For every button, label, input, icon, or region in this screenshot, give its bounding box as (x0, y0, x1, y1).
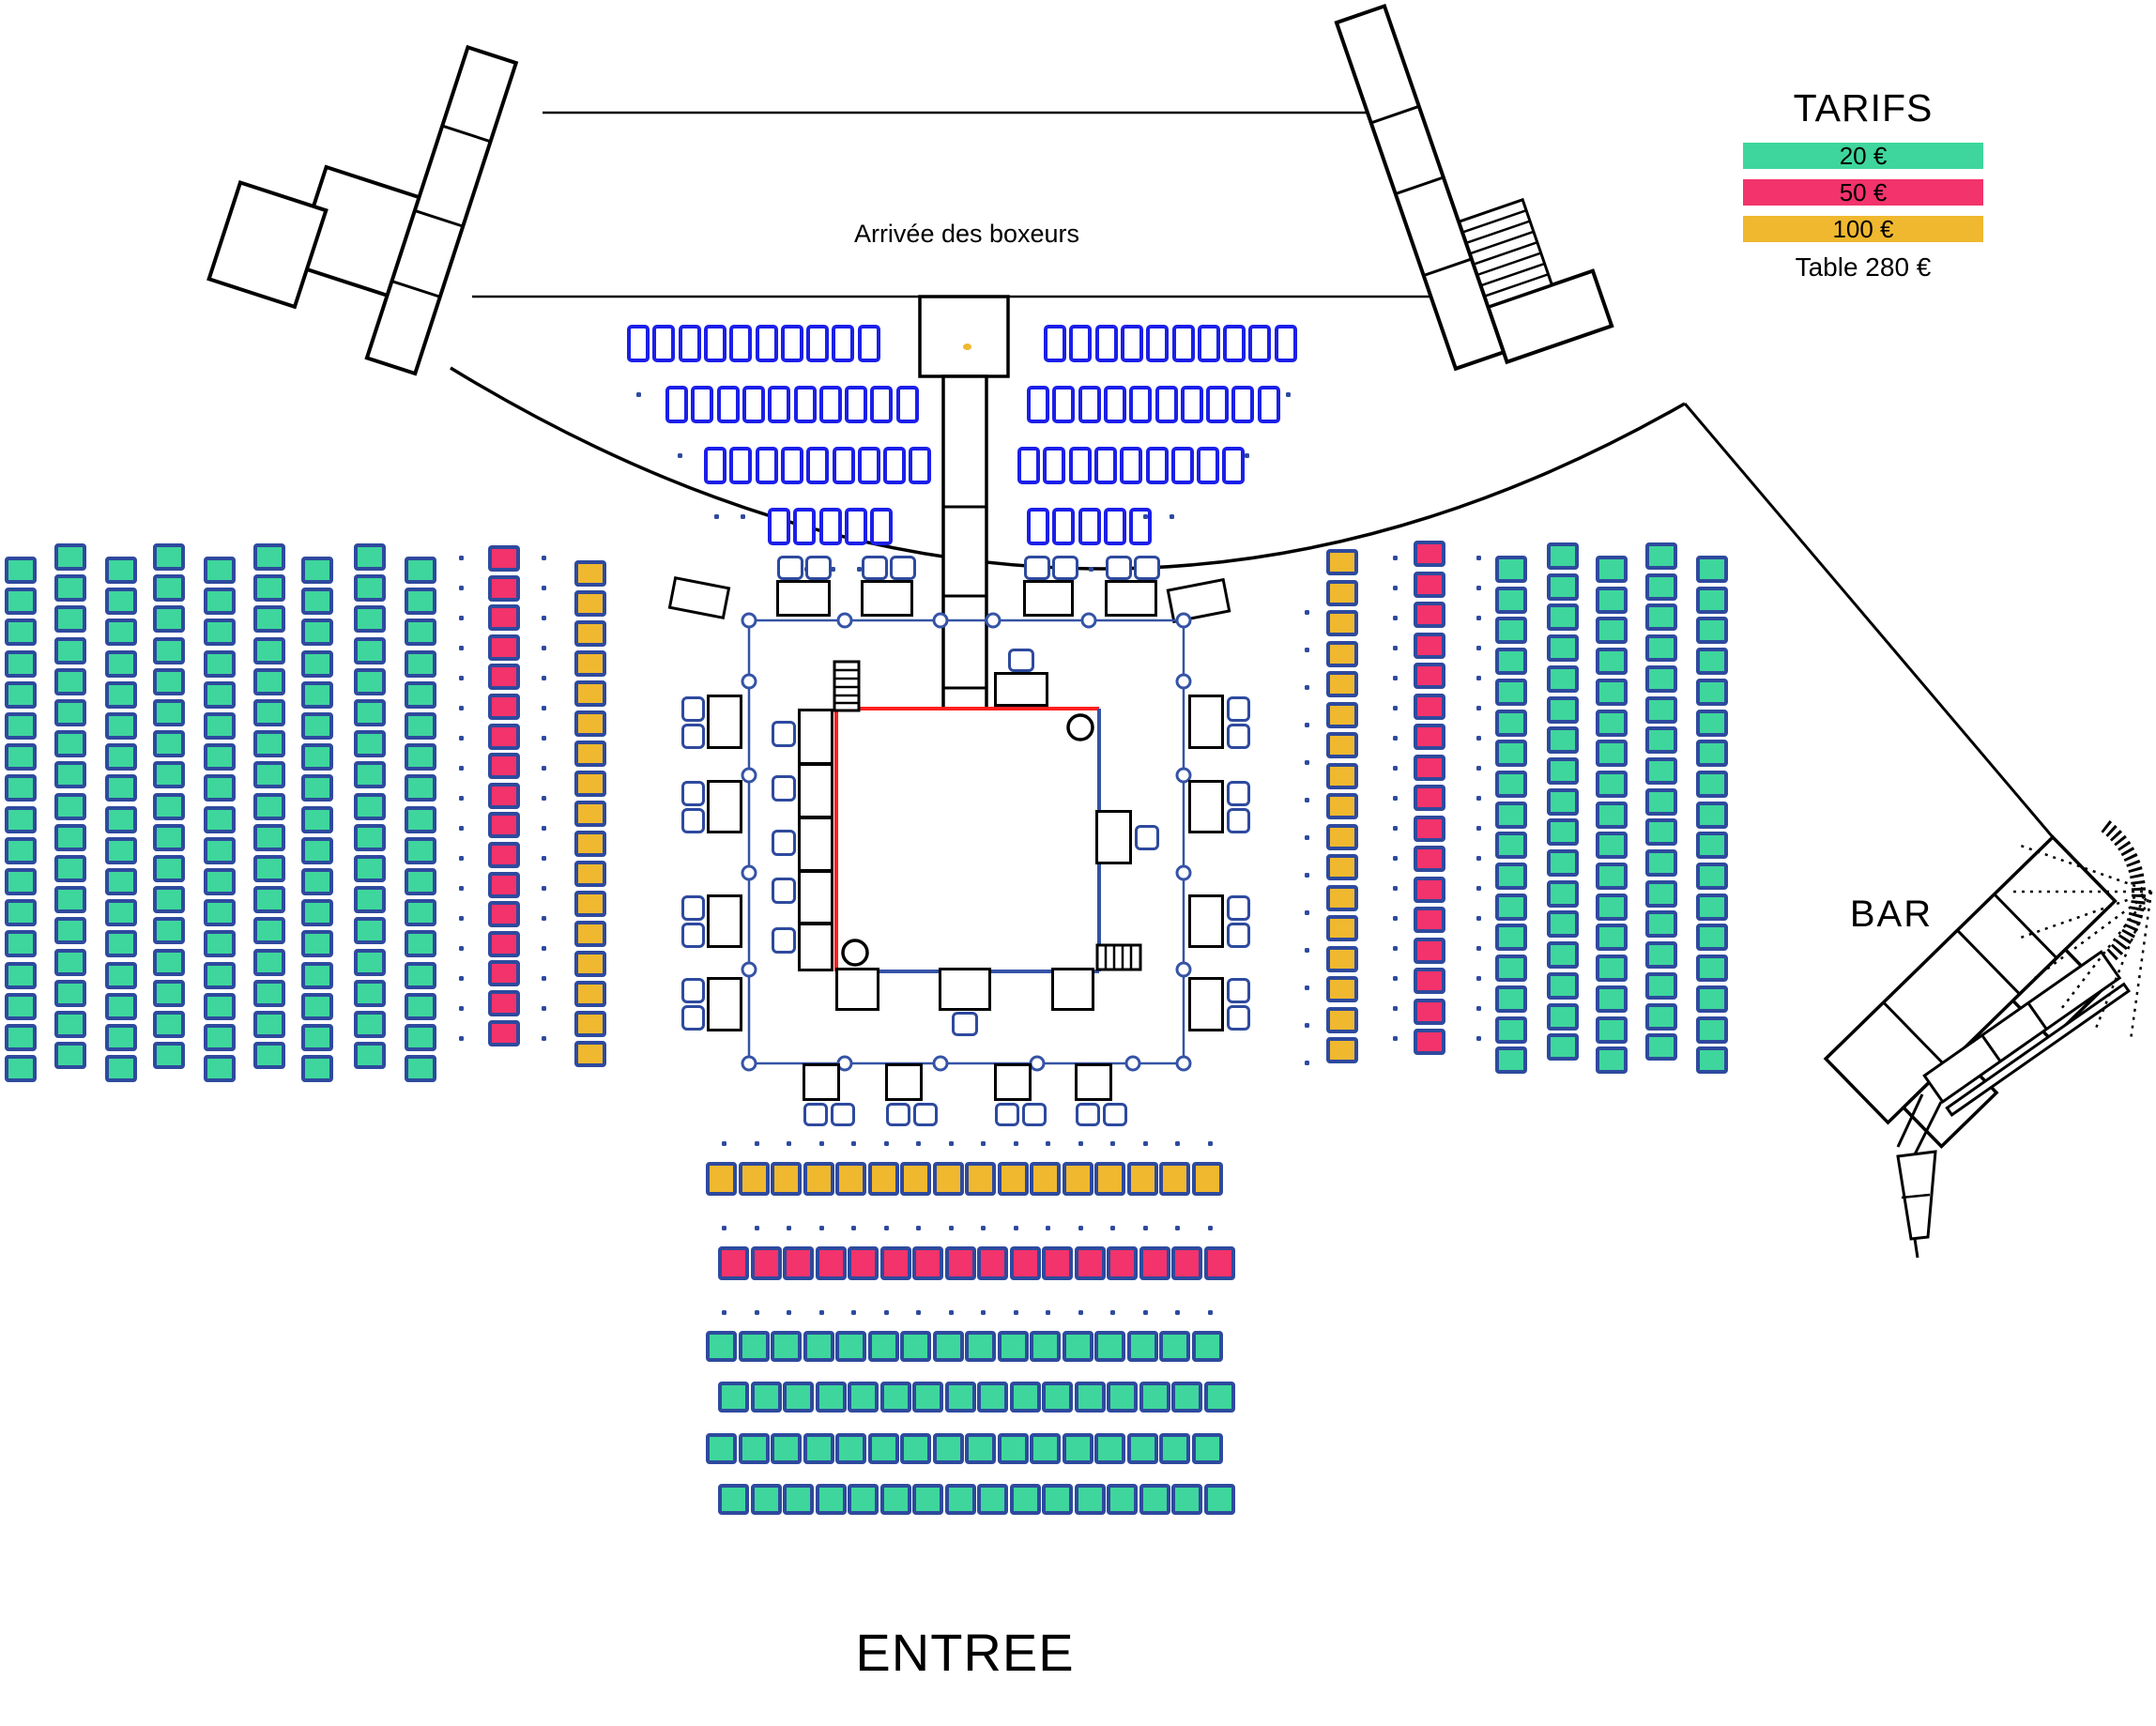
stage-seat[interactable] (691, 386, 713, 423)
stage-seat[interactable] (819, 386, 842, 423)
seat-green[interactable] (405, 712, 436, 740)
seat-green[interactable] (204, 1055, 236, 1082)
seat-green[interactable] (706, 1331, 737, 1362)
chair-icon[interactable] (1022, 1103, 1047, 1126)
seat-pink[interactable] (488, 753, 520, 779)
seat-green[interactable] (977, 1484, 1008, 1515)
seat-green[interactable] (1696, 832, 1728, 859)
seat-green[interactable] (253, 855, 285, 882)
seat-pink[interactable] (488, 604, 520, 631)
seat-green[interactable] (1696, 648, 1728, 675)
stage-seat[interactable] (627, 325, 650, 362)
seat-green[interactable] (253, 637, 285, 664)
seat-green[interactable] (1075, 1484, 1106, 1515)
seat-green[interactable] (253, 917, 285, 944)
seat-green[interactable] (301, 588, 333, 615)
seat-pink[interactable] (945, 1246, 976, 1280)
seat-green[interactable] (1107, 1382, 1138, 1413)
seat-green[interactable] (1645, 634, 1677, 662)
stage-seat[interactable] (717, 386, 740, 423)
seat-green[interactable] (354, 917, 386, 944)
seat-pink[interactable] (488, 1020, 520, 1046)
seat-green[interactable] (1696, 710, 1728, 737)
seat-pink[interactable] (1414, 877, 1445, 903)
seat-green[interactable] (1127, 1433, 1158, 1464)
seat-green[interactable] (1696, 894, 1728, 921)
stage-seat[interactable] (729, 325, 752, 362)
seat-orange[interactable] (1326, 702, 1358, 728)
seat-green[interactable] (1495, 617, 1527, 644)
stage-seat[interactable] (756, 325, 778, 362)
seat-green[interactable] (1696, 740, 1728, 767)
chair-icon[interactable] (1227, 1005, 1250, 1031)
seat-green[interactable] (1596, 802, 1628, 829)
seat-green[interactable] (1159, 1331, 1190, 1362)
seat-green[interactable] (253, 668, 285, 695)
seat-green[interactable] (1596, 556, 1628, 583)
seat-green[interactable] (1645, 696, 1677, 724)
seat-green[interactable] (1139, 1382, 1170, 1413)
chair-icon[interactable] (1103, 1103, 1127, 1126)
chair-icon[interactable] (1106, 556, 1132, 580)
seat-orange[interactable] (574, 891, 606, 917)
seat-green[interactable] (835, 1331, 866, 1362)
seat-orange[interactable] (998, 1162, 1029, 1196)
seat-orange[interactable] (1326, 946, 1358, 972)
seat-green[interactable] (739, 1433, 770, 1464)
seat-green[interactable] (354, 574, 386, 602)
seat-green[interactable] (1547, 910, 1579, 938)
seat-green[interactable] (153, 917, 185, 944)
seat-pink[interactable] (488, 575, 520, 602)
seat-green[interactable] (54, 1011, 86, 1038)
seat-green[interactable] (751, 1484, 782, 1515)
seat-green[interactable] (204, 681, 236, 709)
seat-pink[interactable] (488, 990, 520, 1016)
stage-seat[interactable] (1043, 447, 1065, 484)
stage-seat[interactable] (781, 447, 803, 484)
seat-pink[interactable] (488, 664, 520, 690)
stage-seat[interactable] (1198, 325, 1220, 362)
seat-green[interactable] (405, 1024, 436, 1051)
seat-green[interactable] (105, 712, 137, 740)
seat-green[interactable] (301, 930, 333, 957)
chair-icon[interactable] (1024, 556, 1050, 580)
stage-seat[interactable] (806, 325, 829, 362)
seat-pink[interactable] (1414, 633, 1445, 659)
chair-icon[interactable] (772, 775, 796, 802)
seat-green[interactable] (153, 543, 185, 571)
seat-green[interactable] (998, 1433, 1029, 1464)
seat-pink[interactable] (488, 901, 520, 927)
seat-green[interactable] (816, 1382, 847, 1413)
ringside-table[interactable] (1188, 780, 1224, 833)
stage-seat[interactable] (858, 447, 880, 484)
seat-orange[interactable] (574, 650, 606, 677)
stage-seat[interactable] (832, 325, 854, 362)
seat-green[interactable] (1495, 710, 1527, 737)
stage-seat[interactable] (1069, 325, 1092, 362)
seat-green[interactable] (1645, 603, 1677, 631)
seat-green[interactable] (54, 855, 86, 882)
seat-green[interactable] (354, 949, 386, 976)
stage-seat[interactable] (1129, 508, 1152, 545)
chair-icon[interactable] (681, 1005, 705, 1031)
seat-green[interactable] (105, 743, 137, 771)
seat-green[interactable] (204, 806, 236, 833)
stage-seat[interactable] (909, 447, 931, 484)
seat-green[interactable] (405, 650, 436, 678)
seat-green[interactable] (105, 868, 137, 895)
seat-green[interactable] (54, 699, 86, 726)
stage-seat[interactable] (819, 508, 842, 545)
seat-pink[interactable] (1139, 1246, 1170, 1280)
seat-green[interactable] (1696, 679, 1728, 706)
seat-green[interactable] (54, 917, 86, 944)
seat-green[interactable] (1696, 771, 1728, 798)
seat-green[interactable] (1042, 1382, 1073, 1413)
seat-pink[interactable] (880, 1246, 911, 1280)
seat-pink[interactable] (488, 872, 520, 898)
seat-green[interactable] (1596, 617, 1628, 644)
seat-green[interactable] (153, 1042, 185, 1069)
seat-pink[interactable] (1414, 907, 1445, 933)
seat-orange[interactable] (574, 590, 606, 617)
stage-seat[interactable] (1094, 447, 1117, 484)
seat-green[interactable] (301, 837, 333, 864)
stage-seat[interactable] (1052, 386, 1075, 423)
stage-seat[interactable] (896, 386, 919, 423)
seat-green[interactable] (1696, 617, 1728, 644)
seat-green[interactable] (253, 1042, 285, 1069)
seat-green[interactable] (1010, 1382, 1041, 1413)
seat-green[interactable] (1645, 665, 1677, 693)
seat-green[interactable] (301, 619, 333, 646)
chair-icon[interactable] (681, 781, 705, 806)
seat-orange[interactable] (965, 1162, 996, 1196)
chair-icon[interactable] (995, 1103, 1019, 1126)
seat-orange[interactable] (1326, 976, 1358, 1002)
seat-pink[interactable] (1042, 1246, 1073, 1280)
seat-green[interactable] (1645, 1033, 1677, 1061)
stage-seat[interactable] (1104, 508, 1126, 545)
seat-green[interactable] (1171, 1484, 1202, 1515)
seat-green[interactable] (405, 619, 436, 646)
seat-orange[interactable] (1326, 793, 1358, 819)
chair-icon[interactable] (681, 978, 705, 1003)
seat-pink[interactable] (816, 1246, 847, 1280)
seat-green[interactable] (1645, 849, 1677, 877)
seat-orange[interactable] (574, 560, 606, 587)
seat-green[interactable] (1171, 1382, 1202, 1413)
seat-green[interactable] (912, 1382, 943, 1413)
seat-green[interactable] (5, 619, 37, 646)
seat-green[interactable] (204, 557, 236, 584)
seat-green[interactable] (1696, 1046, 1728, 1074)
seat-green[interactable] (54, 949, 86, 976)
seat-green[interactable] (253, 730, 285, 757)
seat-green[interactable] (1547, 880, 1579, 908)
seat-green[interactable] (204, 1024, 236, 1051)
ringside-table[interactable] (1105, 580, 1157, 617)
seat-orange[interactable] (574, 1041, 606, 1067)
stage-seat[interactable] (704, 325, 726, 362)
seat-green[interactable] (1094, 1433, 1125, 1464)
seat-green[interactable] (880, 1382, 911, 1413)
seat-green[interactable] (405, 993, 436, 1020)
stage-seat[interactable] (1027, 508, 1049, 545)
seat-green[interactable] (354, 730, 386, 757)
seat-green[interactable] (301, 1024, 333, 1051)
seat-green[interactable] (5, 743, 37, 771)
ringside-table[interactable] (798, 817, 833, 872)
ringside-table[interactable] (798, 763, 833, 818)
ringside-table[interactable] (707, 977, 742, 1031)
seat-green[interactable] (1596, 587, 1628, 614)
seat-orange[interactable] (1127, 1162, 1158, 1196)
seat-green[interactable] (54, 574, 86, 602)
ringside-table[interactable] (1075, 1063, 1112, 1101)
seat-green[interactable] (1547, 665, 1579, 693)
seat-green[interactable] (105, 1024, 137, 1051)
seat-green[interactable] (1645, 972, 1677, 1000)
seat-green[interactable] (1192, 1331, 1223, 1362)
seat-orange[interactable] (574, 620, 606, 647)
seat-orange[interactable] (574, 861, 606, 887)
seat-green[interactable] (301, 557, 333, 584)
seat-green[interactable] (998, 1331, 1029, 1362)
chair-icon[interactable] (1052, 556, 1078, 580)
stage-seat[interactable] (1095, 325, 1118, 362)
seat-orange[interactable] (1326, 732, 1358, 758)
ringside-table[interactable] (994, 672, 1048, 707)
stage-seat[interactable] (845, 386, 867, 423)
seat-orange[interactable] (1159, 1162, 1190, 1196)
stage-seat[interactable] (1275, 325, 1297, 362)
seat-green[interactable] (1547, 1003, 1579, 1031)
seat-green[interactable] (1696, 863, 1728, 890)
seat-green[interactable] (253, 793, 285, 820)
seat-green[interactable] (739, 1331, 770, 1362)
seat-green[interactable] (718, 1484, 749, 1515)
seat-green[interactable] (945, 1382, 976, 1413)
seat-green[interactable] (1495, 1046, 1527, 1074)
seat-green[interactable] (105, 837, 137, 864)
seat-green[interactable] (1159, 1433, 1190, 1464)
seat-green[interactable] (1094, 1331, 1125, 1362)
seat-green[interactable] (1075, 1382, 1106, 1413)
seat-green[interactable] (1495, 771, 1527, 798)
seat-green[interactable] (1696, 985, 1728, 1013)
seat-orange[interactable] (574, 741, 606, 767)
seat-green[interactable] (1696, 802, 1728, 829)
stage-seat[interactable] (1120, 447, 1142, 484)
seat-green[interactable] (1495, 648, 1527, 675)
seat-green[interactable] (253, 886, 285, 913)
seat-green[interactable] (301, 681, 333, 709)
chair-icon[interactable] (805, 556, 832, 580)
seat-green[interactable] (5, 837, 37, 864)
seat-green[interactable] (54, 793, 86, 820)
seat-orange[interactable] (574, 801, 606, 827)
seat-green[interactable] (54, 824, 86, 851)
seat-green[interactable] (5, 588, 37, 615)
seat-pink[interactable] (848, 1246, 879, 1280)
seat-orange[interactable] (1192, 1162, 1223, 1196)
seat-green[interactable] (1596, 863, 1628, 890)
chair-icon[interactable] (772, 927, 796, 954)
seat-green[interactable] (354, 637, 386, 664)
seat-green[interactable] (1645, 880, 1677, 908)
seat-green[interactable] (153, 949, 185, 976)
seat-green[interactable] (253, 1011, 285, 1038)
ringside-table[interactable] (994, 1063, 1032, 1101)
seat-green[interactable] (105, 899, 137, 926)
seat-green[interactable] (1547, 603, 1579, 631)
chair-icon[interactable] (681, 895, 705, 921)
ringside-table[interactable] (798, 923, 833, 971)
seat-green[interactable] (848, 1382, 879, 1413)
seat-green[interactable] (405, 930, 436, 957)
chair-icon[interactable] (681, 696, 705, 722)
seat-pink[interactable] (1414, 694, 1445, 720)
seat-green[interactable] (783, 1484, 814, 1515)
seat-orange[interactable] (1326, 580, 1358, 606)
seat-green[interactable] (1495, 587, 1527, 614)
seat-orange[interactable] (1326, 1007, 1358, 1033)
chair-icon[interactable] (772, 721, 796, 747)
seat-green[interactable] (868, 1433, 899, 1464)
seat-green[interactable] (204, 837, 236, 864)
seat-green[interactable] (204, 619, 236, 646)
seat-orange[interactable] (574, 710, 606, 737)
seat-green[interactable] (204, 868, 236, 895)
chair-icon[interactable] (1076, 1103, 1100, 1126)
seat-green[interactable] (1596, 1046, 1628, 1074)
seat-pink[interactable] (1414, 572, 1445, 598)
seat-green[interactable] (54, 668, 86, 695)
seat-green[interactable] (405, 962, 436, 989)
seat-green[interactable] (1495, 985, 1527, 1013)
ringside-table[interactable] (707, 894, 742, 948)
seat-green[interactable] (405, 588, 436, 615)
chair-icon[interactable] (952, 1012, 978, 1036)
seat-green[interactable] (965, 1433, 996, 1464)
seat-green[interactable] (1596, 771, 1628, 798)
chair-icon[interactable] (1227, 696, 1250, 722)
seat-orange[interactable] (835, 1162, 866, 1196)
seat-green[interactable] (253, 543, 285, 571)
seat-green[interactable] (1696, 556, 1728, 583)
seat-green[interactable] (253, 761, 285, 788)
seat-green[interactable] (153, 1011, 185, 1038)
seat-green[interactable] (1127, 1331, 1158, 1362)
seat-green[interactable] (105, 774, 137, 802)
seat-orange[interactable] (1326, 549, 1358, 575)
stage-seat[interactable] (1146, 447, 1169, 484)
stage-seat[interactable] (1017, 447, 1040, 484)
stage-seat[interactable] (756, 447, 778, 484)
seat-green[interactable] (5, 650, 37, 678)
seat-green[interactable] (253, 824, 285, 851)
seat-green[interactable] (1042, 1484, 1073, 1515)
seat-green[interactable] (803, 1331, 834, 1362)
stage-seat[interactable] (883, 447, 906, 484)
seat-green[interactable] (354, 699, 386, 726)
seat-orange[interactable] (900, 1162, 931, 1196)
seat-green[interactable] (105, 930, 137, 957)
chair-icon[interactable] (913, 1103, 938, 1126)
seat-pink[interactable] (1414, 968, 1445, 994)
stage-seat[interactable] (858, 325, 880, 362)
seat-green[interactable] (105, 557, 137, 584)
seat-pink[interactable] (1075, 1246, 1106, 1280)
stage-seat[interactable] (1258, 386, 1280, 423)
stage-seat[interactable] (1044, 325, 1066, 362)
seat-green[interactable] (354, 543, 386, 571)
seat-orange[interactable] (868, 1162, 899, 1196)
seat-green[interactable] (1596, 894, 1628, 921)
stage-seat[interactable] (768, 508, 790, 545)
seat-green[interactable] (153, 668, 185, 695)
chair-icon[interactable] (1227, 978, 1250, 1003)
stage-seat[interactable] (1078, 508, 1101, 545)
seat-orange[interactable] (1326, 854, 1358, 880)
seat-green[interactable] (153, 637, 185, 664)
seat-green[interactable] (1596, 832, 1628, 859)
seat-green[interactable] (54, 605, 86, 633)
seat-green[interactable] (900, 1331, 931, 1362)
seat-green[interactable] (204, 650, 236, 678)
seat-green[interactable] (405, 1055, 436, 1082)
seat-orange[interactable] (574, 921, 606, 947)
seat-pink[interactable] (1414, 938, 1445, 964)
seat-green[interactable] (816, 1484, 847, 1515)
seat-green[interactable] (900, 1433, 931, 1464)
seat-green[interactable] (1547, 1033, 1579, 1061)
seat-pink[interactable] (1107, 1246, 1138, 1280)
seat-green[interactable] (1547, 726, 1579, 754)
seat-green[interactable] (204, 712, 236, 740)
seat-green[interactable] (1030, 1331, 1061, 1362)
seat-pink[interactable] (1414, 816, 1445, 842)
seat-green[interactable] (933, 1331, 964, 1362)
seat-green[interactable] (105, 1055, 137, 1082)
seat-green[interactable] (1495, 679, 1527, 706)
stage-seat[interactable] (1121, 325, 1143, 362)
seat-green[interactable] (1645, 757, 1677, 785)
stage-seat[interactable] (652, 325, 675, 362)
seat-green[interactable] (1645, 1003, 1677, 1031)
seat-green[interactable] (153, 730, 185, 757)
seat-green[interactable] (153, 605, 185, 633)
seat-green[interactable] (880, 1484, 911, 1515)
seat-pink[interactable] (488, 931, 520, 957)
seat-green[interactable] (5, 930, 37, 957)
seat-green[interactable] (153, 699, 185, 726)
seat-green[interactable] (977, 1382, 1008, 1413)
stage-seat[interactable] (1104, 386, 1126, 423)
seat-green[interactable] (1696, 587, 1728, 614)
chair-icon[interactable] (777, 556, 803, 580)
seat-green[interactable] (1596, 1016, 1628, 1044)
seat-green[interactable] (1495, 863, 1527, 890)
stage-seat[interactable] (1223, 325, 1246, 362)
seat-green[interactable] (54, 1042, 86, 1069)
seat-green[interactable] (253, 605, 285, 633)
stage-seat[interactable] (742, 386, 765, 423)
chair-icon[interactable] (886, 1103, 910, 1126)
